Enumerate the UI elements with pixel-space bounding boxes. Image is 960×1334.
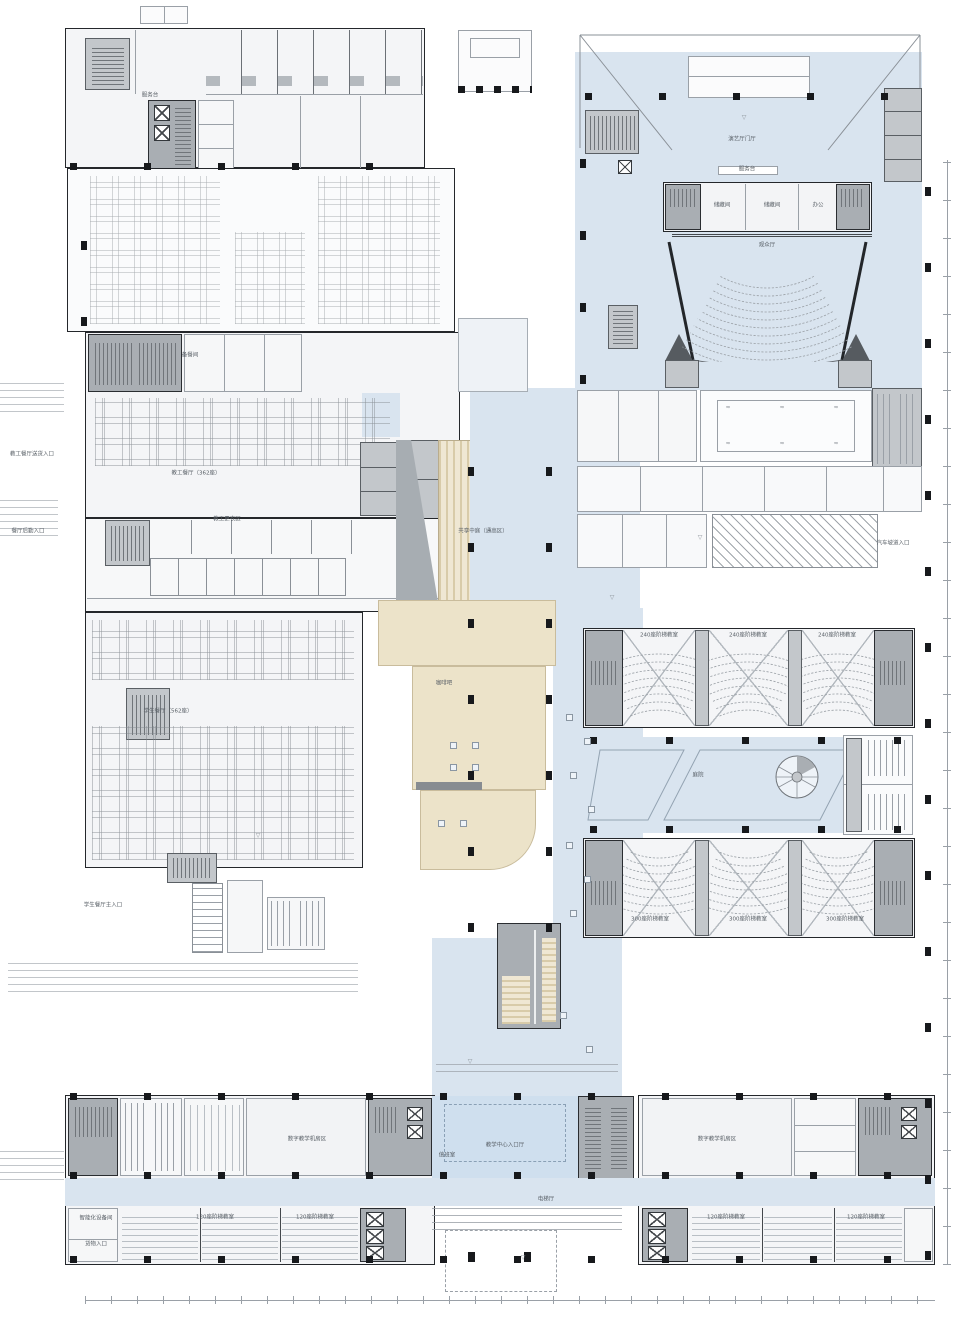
nw-stair-core	[85, 38, 130, 90]
pool-room	[700, 390, 872, 462]
kitchen-prep-cells	[150, 558, 346, 596]
seat-row	[709, 298, 825, 313]
sw-elev-bank	[360, 1208, 406, 1262]
stage-stair-west	[665, 184, 701, 230]
dining-service-rooms	[184, 334, 302, 392]
sw-elev-core	[368, 1098, 432, 1176]
hall240-seating-2	[709, 630, 788, 726]
auditorium-seating	[663, 240, 872, 362]
hall300-seating-1	[623, 840, 695, 936]
south-corridor	[65, 1178, 935, 1206]
seat-row	[709, 662, 788, 672]
entry-stair-core	[578, 1096, 634, 1180]
study-hall-tables-east	[318, 176, 440, 324]
seat-row	[806, 702, 869, 709]
hall120-seating-4	[692, 1212, 760, 1260]
seat-row	[806, 859, 871, 866]
hall-wall	[762, 1208, 763, 1262]
entry-plaza-steps	[8, 958, 358, 992]
seat-row	[809, 852, 868, 858]
cafe-south	[420, 790, 536, 870]
shaft-divider	[198, 148, 234, 149]
nw-room-divider	[135, 30, 136, 94]
column-line	[81, 200, 87, 326]
seat-row	[716, 702, 779, 709]
main-entrance-steps	[432, 1206, 622, 1230]
kitchen-stair	[105, 520, 150, 566]
column-row	[70, 1093, 932, 1100]
kitchen-rooms-upper	[152, 520, 352, 554]
seat-row	[686, 340, 847, 360]
sw-machine-room	[246, 1098, 366, 1176]
band-s-core-west	[585, 840, 623, 936]
seat-row	[623, 662, 695, 672]
seat-row	[630, 852, 689, 858]
service-room	[227, 880, 263, 953]
seat-row	[709, 654, 788, 665]
seat-row	[627, 859, 692, 866]
student-dining-tables-1	[92, 620, 354, 680]
dimension-ticks-south	[85, 1296, 935, 1304]
seat-row	[716, 859, 781, 866]
backstage-rooms-west	[577, 390, 697, 462]
band-n-core-mid2	[788, 630, 802, 726]
sw-classroom	[184, 1098, 244, 1176]
seat-row	[802, 662, 874, 672]
seat-row	[720, 710, 777, 716]
seat-row	[710, 686, 786, 694]
seat-row	[694, 326, 840, 344]
terraced-seating-steps	[438, 440, 472, 602]
seat-row	[720, 276, 814, 288]
ramp-side-rooms	[577, 514, 707, 568]
seat-row	[802, 654, 874, 665]
nw-wall	[300, 96, 301, 168]
seat-row	[802, 686, 874, 694]
equipment-room	[68, 1208, 118, 1262]
student-dining-tables-2	[92, 726, 354, 860]
band-s-core-east	[874, 840, 913, 936]
stage-edge	[672, 234, 872, 237]
seat-row	[709, 678, 788, 687]
nw-wall	[360, 96, 361, 168]
seat-row	[705, 305, 829, 320]
se-elev-bank	[642, 1208, 688, 1262]
west-steps-1	[0, 382, 64, 412]
grand-stair	[497, 923, 561, 1029]
south-stair	[167, 853, 217, 883]
hall300-seating-2	[709, 840, 788, 936]
hall120-seating-3	[282, 1212, 358, 1260]
seat-row	[802, 874, 874, 882]
grand-stair-flight-left	[502, 976, 530, 1024]
seat-exit-west	[665, 360, 699, 388]
stair-hatch	[175, 107, 191, 165]
hall240-seating-3	[802, 630, 874, 726]
dining-stair-core	[88, 334, 182, 392]
elevator-icon	[154, 125, 170, 141]
seat-row	[623, 896, 695, 906]
hall120-seating-5	[764, 1212, 832, 1260]
lobby-service-desk	[718, 166, 778, 175]
seat-row	[802, 896, 874, 906]
column-row	[70, 163, 440, 170]
band-s-core-mid2	[788, 840, 802, 936]
wall	[224, 334, 225, 392]
seat-row	[624, 694, 694, 701]
spiral-stair	[773, 753, 821, 801]
seat-row	[719, 852, 778, 858]
column-line-east	[925, 150, 931, 1260]
grand-stair-flight-right	[542, 938, 556, 1022]
column-row	[590, 826, 910, 833]
sw-stair-core	[68, 1098, 118, 1176]
seat-row	[802, 678, 874, 687]
porch-line	[688, 76, 810, 77]
hall-wall	[834, 1208, 835, 1262]
lobby-elevator	[618, 160, 632, 174]
stair-divider	[534, 930, 536, 1024]
seat-row	[709, 874, 787, 882]
hall-wall	[200, 1208, 201, 1262]
seat-row	[803, 694, 873, 701]
entrance-hall-dash	[444, 1104, 566, 1162]
west-steps-2	[0, 500, 58, 536]
study-hall-tables-mid	[235, 232, 305, 324]
ne-gray-rooms	[884, 88, 922, 182]
seat-row	[709, 903, 788, 914]
storage-cells	[360, 442, 400, 516]
stage-room-wall	[745, 184, 746, 230]
floor-plan-canvas: 服务台备餐间教工餐厅（362座）教工更衣区学生餐厅（562座）咖啡吧共享中庭（通…	[0, 0, 960, 1334]
seat-row	[716, 283, 817, 296]
cafe-main	[412, 666, 546, 790]
band-n-core-mid1	[695, 630, 709, 726]
stage-room-wall	[798, 184, 799, 230]
ramp	[192, 883, 223, 953]
west-steps-3	[0, 1150, 64, 1180]
hall300-seating-3	[802, 840, 874, 936]
seat-row	[623, 866, 695, 874]
lobby-stair-sw	[608, 305, 638, 349]
link-corridor	[458, 318, 528, 392]
seat-row	[709, 896, 788, 906]
label-car-ramp-entry: 汽车坡道入口	[876, 541, 909, 547]
nw-service-core	[148, 100, 196, 172]
sw-restrooms	[120, 1098, 182, 1176]
seat-row	[810, 710, 867, 716]
seat-row	[623, 654, 695, 665]
label-student-dining-entry: 学生餐厅主入口	[84, 903, 123, 909]
north-porch	[688, 56, 810, 98]
column-row	[70, 1256, 932, 1263]
band-s-core-mid1	[695, 840, 709, 936]
roof-block-divider	[164, 6, 165, 24]
lobby-stair-nw	[585, 110, 639, 154]
hall-wall	[280, 1208, 281, 1262]
hall120-seating-6	[836, 1212, 902, 1260]
north-connector-columns	[458, 86, 532, 93]
atrium-steps	[436, 1058, 618, 1072]
staff-dining-tables	[95, 398, 390, 466]
se-elev-core	[858, 1098, 932, 1176]
se-rooms	[794, 1098, 856, 1176]
south-room-band	[577, 466, 922, 512]
auditorium-wc	[872, 388, 922, 470]
seat-row	[802, 866, 874, 874]
column-line	[546, 404, 552, 932]
restrooms-south	[267, 897, 325, 950]
hall120-seating-2	[202, 1212, 278, 1260]
seat-row	[623, 903, 695, 914]
seat-row	[713, 290, 822, 304]
column-line	[468, 404, 474, 932]
seat-row	[623, 678, 695, 687]
elevator-icon	[154, 105, 170, 121]
study-hall-tables-west	[90, 176, 220, 324]
hall240-seating-1	[623, 630, 695, 726]
seat-row	[701, 312, 832, 328]
label-delivery-entry: 教工餐厅送货入口	[10, 452, 54, 458]
hall120-seating-1	[122, 1212, 198, 1260]
bathroom-pods	[206, 76, 423, 86]
stage-stair-east	[836, 184, 870, 230]
dimension-ticks-east	[943, 160, 951, 1265]
seat-row	[698, 319, 837, 336]
column-row	[70, 1172, 932, 1179]
cafe-upper	[378, 600, 556, 666]
band-n-core-east	[874, 630, 913, 726]
seat-row	[802, 903, 874, 914]
column-line	[580, 100, 586, 384]
band-n-core-west	[585, 630, 623, 726]
courtyard-wc	[843, 735, 913, 835]
shaft-divider	[198, 124, 234, 125]
seat-row	[623, 874, 695, 882]
wall	[264, 334, 265, 392]
nw-shaft-rooms	[198, 100, 234, 172]
seat-row	[713, 694, 783, 701]
seat-row	[623, 686, 695, 694]
seat-exit-east	[838, 360, 872, 388]
column-row	[590, 737, 910, 744]
seat-row	[627, 702, 690, 709]
seat-row	[631, 710, 688, 716]
room-band-wall	[206, 94, 423, 95]
north-connector-inner	[470, 38, 520, 58]
car-ramp	[712, 514, 878, 568]
column-row	[585, 93, 915, 100]
se-machine-room	[642, 1098, 792, 1176]
seat-row	[712, 866, 784, 874]
